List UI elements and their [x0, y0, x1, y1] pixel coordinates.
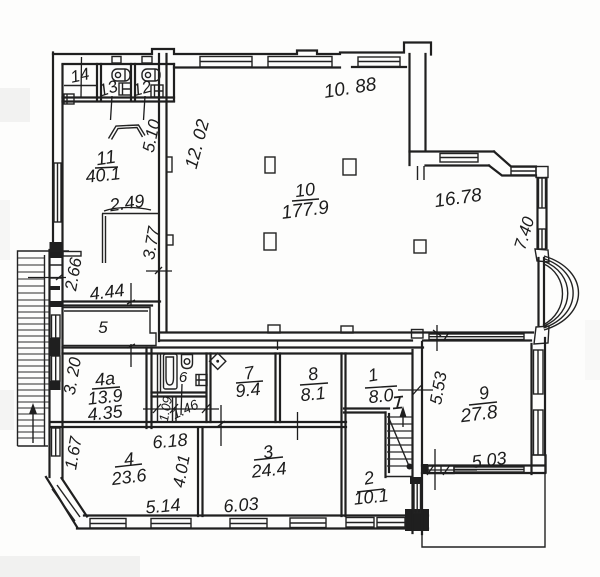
- svg-text:8.1: 8.1: [300, 383, 327, 406]
- svg-text:177.9: 177.9: [280, 197, 330, 224]
- svg-text:6.18: 6.18: [152, 430, 189, 453]
- svg-text:1.67: 1.67: [61, 435, 86, 471]
- svg-text:2.66: 2.66: [61, 256, 86, 293]
- svg-text:8: 8: [306, 363, 319, 384]
- svg-text:23.6: 23.6: [109, 465, 148, 489]
- svg-text:6.03: 6.03: [223, 494, 260, 517]
- svg-text:14: 14: [69, 64, 91, 87]
- svg-text:4.01: 4.01: [169, 453, 193, 489]
- svg-text:2: 2: [361, 467, 375, 489]
- svg-text:24.4: 24.4: [250, 458, 288, 482]
- svg-text:3. 20: 3. 20: [60, 355, 85, 396]
- svg-text:1: 1: [366, 364, 379, 385]
- svg-text:10. 88: 10. 88: [322, 74, 378, 103]
- svg-text:2.49: 2.49: [107, 191, 145, 216]
- svg-text:12. 02: 12. 02: [181, 117, 213, 171]
- svg-text:6: 6: [179, 369, 188, 386]
- svg-text:27.8: 27.8: [458, 402, 499, 428]
- svg-text:9: 9: [477, 382, 490, 403]
- svg-text:5.14: 5.14: [145, 495, 182, 518]
- svg-text:5.03: 5.03: [470, 448, 507, 472]
- svg-text:5.10: 5.10: [139, 117, 165, 154]
- svg-text:10: 10: [294, 179, 316, 201]
- svg-text:4.35: 4.35: [87, 401, 125, 425]
- svg-text:16.78: 16.78: [433, 185, 483, 212]
- svg-text:7.40: 7.40: [511, 214, 539, 252]
- svg-text:3.77: 3.77: [139, 225, 164, 261]
- svg-text:4.44: 4.44: [88, 280, 125, 304]
- svg-text:5: 5: [98, 318, 108, 337]
- svg-text:5.53: 5.53: [426, 370, 451, 406]
